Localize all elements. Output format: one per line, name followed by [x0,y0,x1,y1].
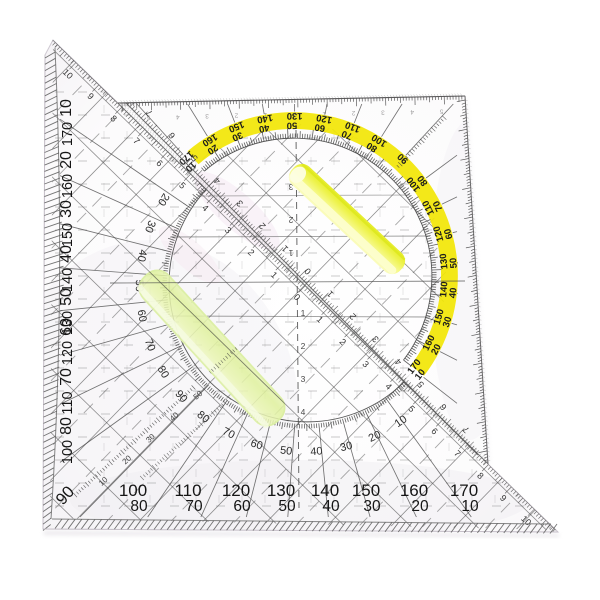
svg-text:2: 2 [288,215,293,225]
svg-text:50: 50 [278,498,296,515]
svg-text:70: 70 [185,498,203,515]
svg-text:3: 3 [205,112,209,119]
svg-text:2: 2 [351,109,355,116]
svg-text:4: 4 [410,108,414,115]
svg-text:5: 5 [146,113,150,120]
svg-text:80: 80 [58,417,75,435]
svg-text:60: 60 [58,318,75,336]
svg-text:140: 140 [438,281,450,298]
svg-text:110: 110 [60,391,76,414]
svg-text:2: 2 [234,112,238,119]
svg-text:1: 1 [322,110,326,117]
svg-text:20: 20 [411,498,429,515]
svg-text:1: 1 [264,111,268,118]
svg-text:60: 60 [233,498,251,515]
svg-text:2: 2 [301,341,306,351]
svg-text:30: 30 [363,498,381,515]
svg-text:70: 70 [58,368,75,386]
svg-text:50: 50 [287,120,298,131]
svg-text:4: 4 [301,407,306,417]
svg-text:50: 50 [279,444,293,457]
svg-text:10: 10 [461,498,479,515]
svg-text:40: 40 [135,248,149,262]
svg-text:130: 130 [438,253,450,270]
svg-text:170: 170 [60,122,76,146]
svg-text:50: 50 [58,288,75,306]
svg-text:3: 3 [301,374,306,384]
svg-text:40: 40 [322,498,340,515]
svg-text:1: 1 [301,308,306,318]
svg-text:60: 60 [314,121,326,134]
svg-text:3: 3 [381,109,385,116]
svg-text:120: 120 [60,341,76,365]
svg-text:80: 80 [130,498,148,515]
svg-text:5: 5 [439,108,443,115]
svg-text:30: 30 [58,200,75,218]
svg-text:100: 100 [60,440,76,464]
svg-text:60: 60 [135,309,149,323]
svg-text:160: 160 [60,174,76,198]
svg-text:20: 20 [58,151,75,169]
svg-text:150: 150 [60,223,76,247]
svg-text:4: 4 [176,113,180,120]
svg-text:0: 0 [293,110,297,117]
svg-text:40: 40 [258,122,271,135]
svg-text:10: 10 [58,99,75,117]
